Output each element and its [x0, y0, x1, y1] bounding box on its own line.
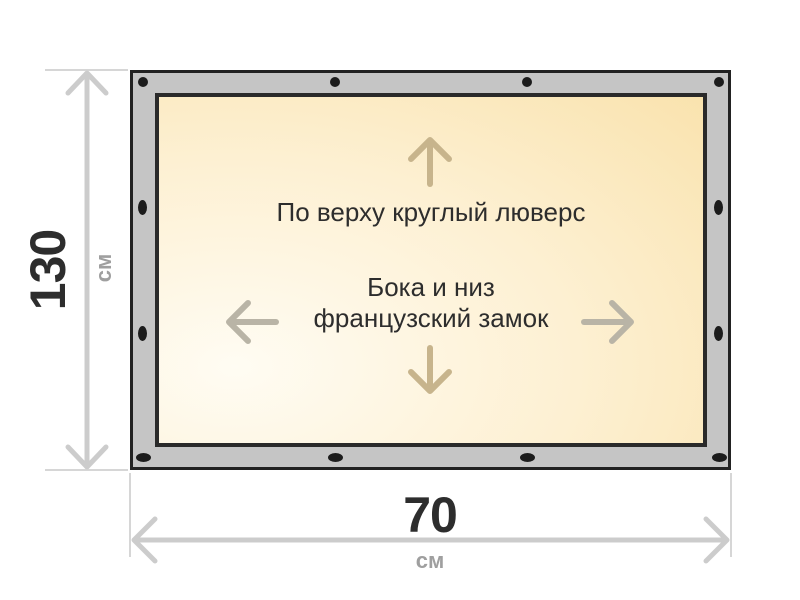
- grommet-icon: [138, 326, 147, 341]
- grommet-icon: [328, 453, 343, 462]
- grommet-icon: [714, 200, 723, 215]
- width-value-label: 70: [130, 486, 730, 544]
- sides-annotation: Бока и низ французский замок: [155, 272, 707, 334]
- top-edge-annotation: По верху круглый люверс: [155, 197, 707, 228]
- height-unit-label: см: [89, 238, 119, 298]
- grommet-icon: [714, 77, 724, 87]
- sides-annotation-line2: французский замок: [155, 303, 707, 334]
- grommet-icon: [330, 77, 340, 87]
- sides-annotation-line1: Бока и низ: [155, 272, 707, 303]
- grommet-icon: [714, 326, 723, 341]
- grommet-icon: [520, 453, 535, 462]
- dimension-diagram: По верху круглый люверс Бока и низ франц…: [0, 0, 800, 600]
- banner-panel: [155, 93, 707, 447]
- grommet-icon: [522, 77, 532, 87]
- grommet-icon: [138, 77, 148, 87]
- grommet-icon: [136, 453, 151, 462]
- width-unit-label: см: [130, 548, 730, 574]
- grommet-icon: [138, 200, 147, 215]
- grommet-icon: [712, 453, 727, 462]
- height-value-label: 130: [18, 170, 78, 370]
